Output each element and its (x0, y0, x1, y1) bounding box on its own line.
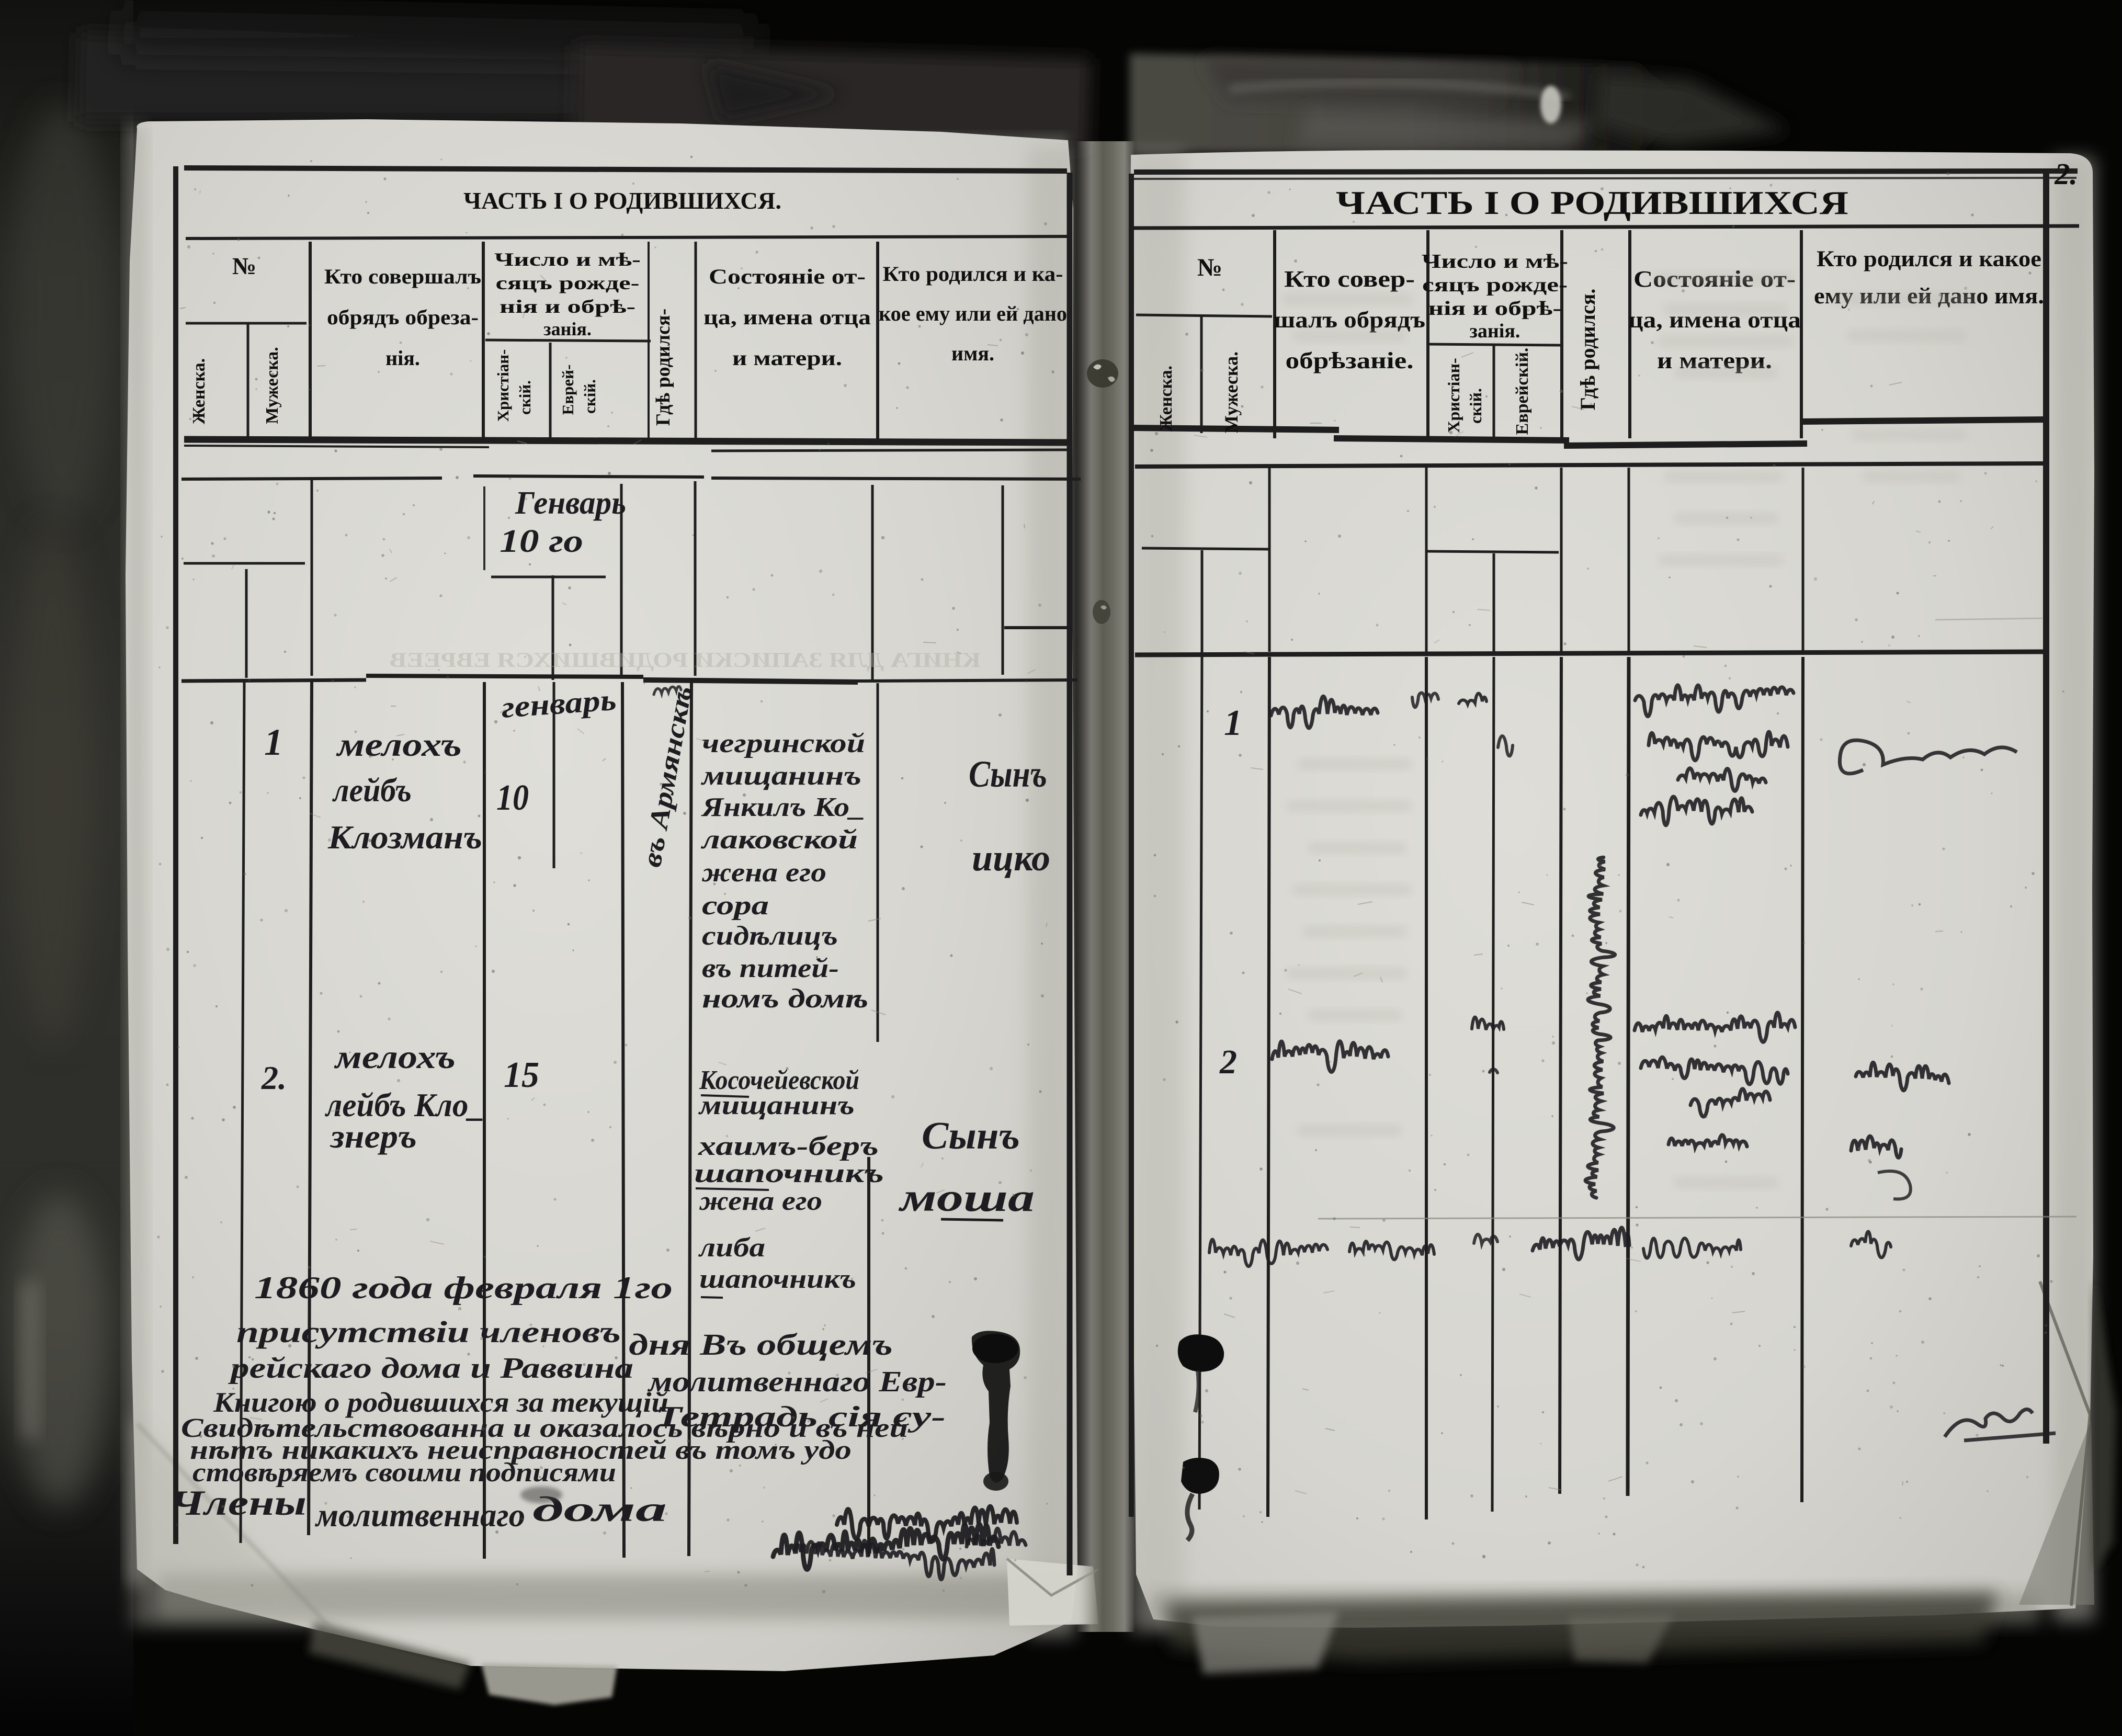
svg-text:мищанинъ: мищанинъ (701, 761, 861, 791)
svg-text:КНИГА ДЛЯ ЗАПИСКИ РОДИВШИХСЯ Е: КНИГА ДЛЯ ЗАПИСКИ РОДИВШИХСЯ ЕВРЕЕВ (390, 648, 981, 672)
svg-text:Кто родился и какое: Кто родился и какое (1817, 247, 2041, 271)
svg-text:мищанинъ: мищанинъ (698, 1091, 855, 1120)
svg-text:Генварь: Генварь (515, 485, 626, 521)
svg-text:ЧАСТЬ І О РОДИВШИХСЯ: ЧАСТЬ І О РОДИВШИХСЯ (1336, 184, 1848, 221)
svg-text:хаимъ-беръ: хаимъ-беръ (698, 1131, 879, 1161)
svg-text:№: № (232, 253, 256, 279)
svg-text:сидѣлицъ: сидѣлицъ (702, 921, 838, 951)
svg-text:и матери.: и матери. (732, 346, 842, 370)
svg-text:обрѣзаніе.: обрѣзаніе. (1286, 348, 1414, 373)
svg-text:скій.: скій. (516, 380, 534, 415)
svg-text:нія.: нія. (385, 346, 420, 370)
svg-text:сяцъ рожде-: сяцъ рожде- (1422, 274, 1568, 296)
svg-text:рейскаго дома и Раввина: рейскаго дома и Раввина (228, 1352, 633, 1385)
svg-text:занія.: занія. (543, 319, 592, 339)
svg-text:Кто совершалъ: Кто совершалъ (324, 265, 481, 288)
svg-text:Христіан-: Христіан- (494, 349, 512, 422)
svg-text:шалъ обрядъ: шалъ обрядъ (1274, 307, 1425, 333)
svg-text:присутствіи членовъ: присутствіи членовъ (236, 1315, 621, 1349)
svg-text:15: 15 (504, 1055, 539, 1095)
svg-text:мелохъ: мелохъ (334, 1038, 456, 1075)
svg-text:знеръ: знеръ (330, 1118, 417, 1155)
svg-text:ицко: ицко (972, 837, 1050, 879)
svg-text:нія и обрѣ-: нія и обрѣ- (1428, 298, 1562, 320)
svg-text:Янкилъ Ко_: Янкилъ Ко_ (701, 792, 865, 822)
svg-text:Мужеска.: Мужеска. (263, 347, 282, 424)
svg-text:Христіан-: Христіан- (1444, 358, 1463, 433)
svg-text:Кто родился и ка-: Кто родился и ка- (883, 262, 1063, 286)
svg-text:1: 1 (1224, 703, 1242, 743)
svg-text:Кто совер-: Кто совер- (1284, 266, 1415, 292)
svg-text:Состояніе от-: Состояніе от- (709, 265, 866, 288)
svg-text:10: 10 (496, 778, 529, 818)
svg-text:дня Въ общемъ: дня Въ общемъ (629, 1327, 893, 1361)
svg-text:сора: сора (702, 891, 769, 921)
svg-text:Число и мѣ-: Число и мѣ- (1422, 251, 1568, 273)
svg-text:въ питей-: въ питей- (702, 954, 839, 983)
svg-text:Женска.: Женска. (189, 358, 209, 424)
svg-text:Мужеска.: Мужеска. (1221, 351, 1242, 433)
svg-text:Клозманъ: Клозманъ (327, 819, 482, 856)
svg-text:Число и мѣ-: Число и мѣ- (494, 249, 641, 270)
svg-text:либа: либа (698, 1233, 765, 1263)
svg-text:номъ домѣ: номъ домѣ (702, 984, 868, 1014)
svg-text:2: 2 (1219, 1043, 1237, 1081)
svg-text:скій.: скій. (581, 379, 599, 414)
svg-text:Гдѣ родился-: Гдѣ родился- (652, 309, 674, 426)
svg-text:нія и обрѣ-: нія и обрѣ- (500, 296, 636, 317)
svg-text:кое ему или ей дано: кое ему или ей дано (879, 302, 1067, 325)
svg-text:Женска.: Женска. (1156, 366, 1176, 432)
svg-text:ЧАСТЬ І О РОДИВШИХСЯ.: ЧАСТЬ І О РОДИВШИХСЯ. (463, 187, 781, 214)
svg-text:2.: 2. (261, 1059, 287, 1096)
svg-text:скій.: скій. (1466, 388, 1485, 424)
svg-text:сяцъ рожде-: сяцъ рожде- (496, 273, 640, 293)
svg-text:обрядъ обреза-: обрядъ обреза- (327, 305, 479, 329)
svg-text:жена его: жена его (701, 858, 826, 888)
svg-text:моша: моша (898, 1176, 1035, 1220)
svg-text:молитвеннаго: молитвеннаго (314, 1496, 525, 1534)
svg-text:занія.: занія. (1470, 320, 1520, 342)
svg-text:Еврей-: Еврей- (559, 365, 577, 415)
svg-text:жена его: жена его (699, 1186, 822, 1216)
svg-text:1: 1 (264, 721, 283, 763)
svg-text:молитвеннаго Евр-: молитвеннаго Евр- (648, 1366, 947, 1398)
svg-text:лейбъ: лейбъ (332, 771, 412, 809)
svg-text:Еврейскій.: Еврейскій. (1513, 348, 1532, 435)
svg-text:Сынъ: Сынъ (922, 1115, 1020, 1158)
svg-text:1860 года февраля 1го: 1860 года февраля 1го (254, 1270, 673, 1305)
svg-text:шапочникъ: шапочникъ (699, 1264, 856, 1294)
svg-text:Члены: Члены (169, 1483, 307, 1523)
svg-text:Гдѣ родился.: Гдѣ родился. (1576, 289, 1599, 411)
svg-text:№: № (1197, 254, 1222, 281)
svg-text:ца, имена отца: ца, имена отца (703, 305, 871, 329)
svg-text:шапочникъ: шапочникъ (694, 1159, 884, 1188)
svg-text:10 го: 10 го (500, 524, 583, 559)
svg-text:чегринской: чегринской (702, 729, 865, 758)
svg-text:2.: 2. (2054, 157, 2078, 191)
svg-text:Сынъ: Сынъ (969, 753, 1047, 795)
